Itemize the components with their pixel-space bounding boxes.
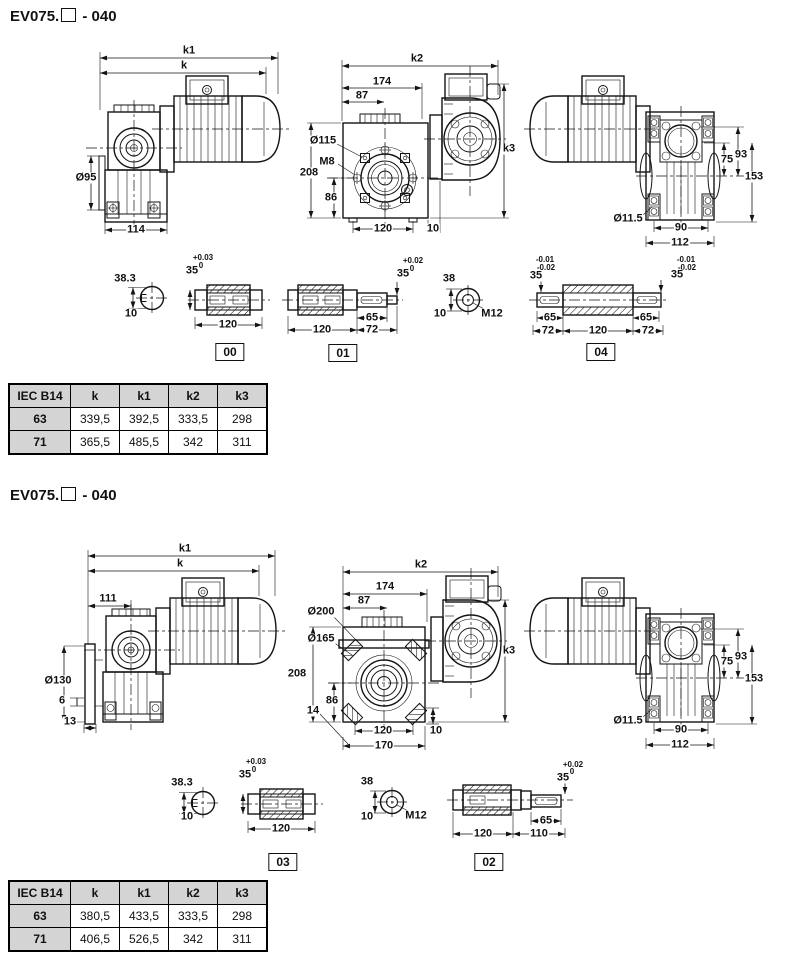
dim-label: k [180,61,188,72]
dim-label: Ø95 [75,173,98,184]
table-header-cell: k2 [169,881,218,905]
table-cell: 342 [169,431,218,455]
dim-label: 120 [218,320,238,331]
dim-label: 75 [720,155,734,166]
table-cell: 433,5 [120,905,169,928]
dim-label: k2 [414,560,428,571]
table-header-cell: k [71,881,120,905]
dim-label: 93 [734,652,748,663]
dim-label: Ø11.5 [612,716,643,727]
section-title: EV075. - 040 [10,8,117,25]
dim-label: 10 [180,812,194,823]
table-cell: 380,5 [71,905,120,928]
drawing-front-view-1 [307,60,509,233]
dim-label: 14 [306,706,320,717]
dim-label: 120 [473,829,493,840]
table-row: 71406,5526,5342311 [9,928,267,952]
table-row-header: 63 [9,905,71,928]
table-header-cell: k1 [120,881,169,905]
drawing-side-view-2 [64,550,286,733]
section-title: EV075. - 040 [10,487,117,504]
dim-label: 75 [720,657,734,668]
dim-label: 38.3 [113,274,136,285]
dim-label: k [176,559,184,570]
table-cell: 333,5 [169,408,218,431]
dim-label: 6 [58,696,66,707]
dim-label: Ø165 [307,634,336,645]
dim-label: 72 [365,325,379,336]
dim-label: 86 [325,696,339,707]
dim-label: 120 [373,726,393,737]
dim-label: 153 [744,172,764,183]
variant-label: 04 [586,343,615,361]
table-header-cell: k3 [218,384,268,408]
dimension-table-section2: IEC B14kk1k2k363380,5433,5333,529871406,… [8,880,268,952]
dim-label: 120 [312,325,332,336]
table-row-header: 71 [9,928,71,952]
dim-label: 65 [543,313,557,324]
dim-label: 87 [357,596,371,607]
table-cell: 339,5 [71,408,120,431]
drawing-side-view-1 [86,52,290,234]
table-header-cell: k2 [169,384,218,408]
dim-label: 38.3 [170,778,193,789]
variant-label: 03 [268,853,297,871]
table-cell: 311 [218,431,268,455]
dim-label: 10 [124,309,138,320]
page: EV075. - 040 EV075. - 040 k1kØ95114k2174… [0,0,787,958]
dim-label: 38 [442,274,456,285]
dim-label: k2 [410,54,424,65]
dim-label: Ø130 [44,676,73,687]
table-header-cell: k1 [120,384,169,408]
dim-label: 72 [641,326,655,337]
table-cell: 298 [218,905,268,928]
table-row: 63339,5392,5333,5298 [9,408,267,431]
dim-label: 114 [126,225,146,236]
table-header-cell: IEC B14 [9,881,71,905]
table-row: 63380,5433,5333,5298 [9,905,267,928]
dim-label: Ø11.5 [612,214,643,225]
table-cell: 365,5 [71,431,120,455]
variant-label: 02 [474,853,503,871]
dim-label: k1 [178,544,192,555]
table-cell: 485,5 [120,431,169,455]
dim-label: M8 [318,157,335,168]
dim-label: 112 [670,238,690,249]
table-row-header: 63 [9,408,71,431]
dim-label: 208 [287,669,307,680]
table-cell: 392,5 [120,408,169,431]
table-header-cell: k3 [218,881,268,905]
dim-label: 13 [63,717,77,728]
dim-label: 35 [670,270,684,281]
table-cell: 311 [218,928,268,952]
dim-label: 208 [299,168,319,179]
dim-label: 0 [409,265,415,273]
dim-label: 0 [569,768,575,776]
dimension-table-section1: IEC B14kk1k2k363339,5392,5333,529871365,… [8,383,268,455]
dim-label: Ø115 [309,136,337,147]
dim-label: 72 [541,326,555,337]
placeholder-box-icon [61,8,76,22]
dim-label: 111 [98,594,117,605]
table-cell: 406,5 [71,928,120,952]
title-prefix: EV075. [10,487,59,504]
dim-label: 110 [529,829,549,840]
dim-label: k1 [182,46,196,57]
table-row: 71365,5485,5342311 [9,431,267,455]
drawing-front-view-2 [309,566,509,750]
dim-label: 87 [355,91,369,102]
dim-label: 10 [433,309,447,320]
dim-label: k3 [502,144,516,155]
dim-label: M12 [404,811,427,822]
dimension-table: IEC B14kk1k2k363339,5392,5333,529871365,… [8,383,268,455]
dim-label: 112 [670,740,690,751]
dim-label: 120 [588,326,608,337]
dimension-table: IEC B14kk1k2k363380,5433,5333,529871406,… [8,880,268,952]
table-header-cell: IEC B14 [9,384,71,408]
dim-label: 10 [429,726,443,737]
dim-label: +0.03 [245,758,267,766]
dim-label: 0 [198,262,204,270]
dim-label: Ø200 [307,607,336,618]
shaft-variants-2 [179,782,573,838]
dim-label: 174 [372,77,392,88]
dim-label: 170 [374,741,394,752]
dim-label: 153 [744,674,764,685]
dim-label: 65 [639,313,653,324]
dim-label: 120 [373,224,393,235]
placeholder-box-icon [61,487,76,501]
dim-label: k3 [502,646,516,657]
dim-label: 10 [426,224,440,235]
table-cell: 333,5 [169,905,218,928]
title-suffix: - 040 [78,487,116,504]
title-prefix: EV075. [10,8,59,25]
table-cell: 526,5 [120,928,169,952]
table-cell: 342 [169,928,218,952]
dim-label: M12 [480,309,503,320]
dim-label: 93 [734,150,748,161]
table-header-cell: k [71,384,120,408]
dim-label: 86 [324,193,338,204]
dim-label: 174 [375,582,395,593]
table-cell: 298 [218,408,268,431]
dim-label: 90 [674,223,688,234]
title-suffix: - 040 [78,8,116,25]
variant-label: 00 [215,343,244,361]
dim-label: 65 [365,313,379,324]
dim-label: 0 [251,766,257,774]
dim-label: 65 [539,816,553,827]
technical-drawings [0,0,787,958]
dim-label: 10 [360,812,374,823]
table-row-header: 71 [9,431,71,455]
dim-label: 90 [674,725,688,736]
dim-label: 35 [529,271,543,282]
dim-label: 120 [271,824,291,835]
dim-label: +0.03 [192,254,214,262]
dim-label: 38 [360,777,374,788]
variant-label: 01 [328,344,357,362]
